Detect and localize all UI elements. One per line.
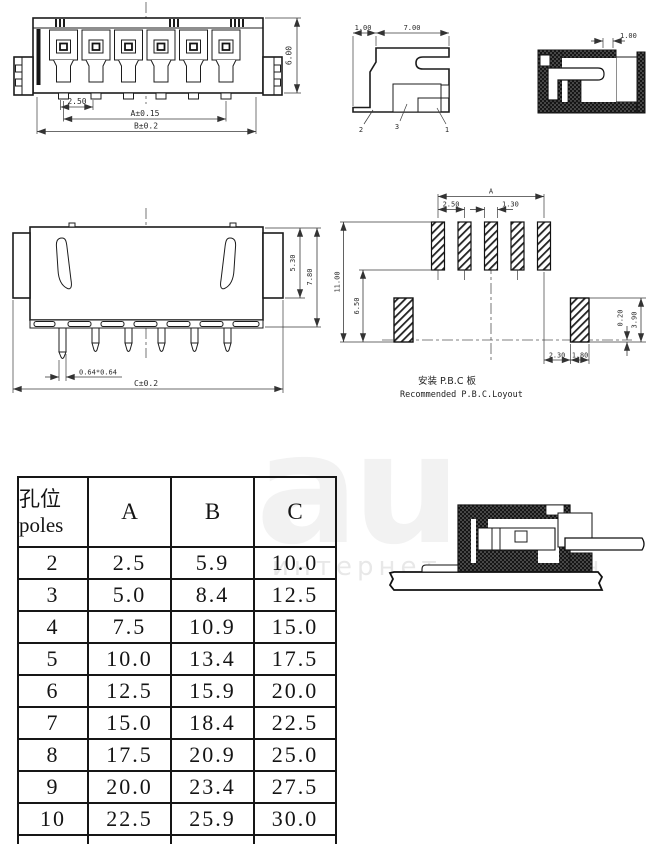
- dim-height: 6.00: [285, 46, 294, 65]
- table-cell: 12.5: [254, 579, 336, 611]
- table-cell: 15.0: [254, 611, 336, 643]
- table-row: 612.515.920.0: [18, 675, 336, 707]
- dim-2-3: 2.30: [549, 352, 565, 360]
- dim-span-a: A: [489, 188, 494, 196]
- table-cell: 18.4: [171, 707, 254, 739]
- table-cell: 9: [18, 771, 88, 803]
- table-cell: 2: [18, 547, 88, 579]
- pcb-dimensions: A 2.50 1.30 11.00 6.50 0.20 3.90: [334, 188, 647, 365]
- pcb-caption-zh: 安装 P.B.C 板: [418, 375, 476, 387]
- table-cell: 25.0: [254, 739, 336, 771]
- table-cell: 10.0: [254, 547, 336, 579]
- table-cell: 27.5: [254, 771, 336, 803]
- pcb-layout-drawing: A 2.50 1.30 11.00 6.50 0.20 3.90: [330, 168, 653, 410]
- table-cell: 8.4: [171, 579, 254, 611]
- mount-foot: [422, 565, 458, 572]
- table-cell: 5.9: [171, 547, 254, 579]
- pin-tail: [565, 538, 644, 550]
- table-cell: 8: [18, 739, 88, 771]
- table-cell: 30.0: [254, 803, 336, 835]
- side-view-drawing: 1.00 7.00 2 3 1 1.00: [330, 0, 653, 168]
- datasheet-page: au интернет аукцион: [0, 0, 653, 844]
- side-profile: [353, 48, 449, 112]
- table-cell: 10.0: [88, 643, 171, 675]
- dim-body-height: 7.80: [306, 269, 314, 286]
- spec-table-body: 22.55.910.035.08.412.547.510.915.0510.01…: [18, 547, 336, 835]
- dim-slot-depth: 5.30: [289, 255, 297, 272]
- table-cell: 25.9: [171, 803, 254, 835]
- section-view: 1.00: [538, 32, 645, 113]
- table-cell: 3: [18, 579, 88, 611]
- dim-pin-size: 0.64*0.64: [79, 369, 117, 377]
- dim-1-8: 1.80: [572, 352, 588, 360]
- front-mount-ear-right: [263, 57, 282, 95]
- table-cell: 12.5: [88, 675, 171, 707]
- table-cell: 20.9: [171, 739, 254, 771]
- table-header-row: 孔位 poles A B C: [18, 477, 336, 547]
- table-cell: 2.5: [88, 547, 171, 579]
- col-header-poles: 孔位 poles: [18, 477, 88, 547]
- table-cell: 7.5: [88, 611, 171, 643]
- table-cell: 22.5: [254, 707, 336, 739]
- table-cell: 6: [18, 675, 88, 707]
- dim-0-2: 0.20: [617, 310, 625, 327]
- col-header-b: B: [171, 477, 254, 547]
- table-cell: 10.9: [171, 611, 254, 643]
- table-cell: 17.5: [254, 643, 336, 675]
- table-cell: 5: [18, 643, 88, 675]
- table-cell: 4: [18, 611, 88, 643]
- table-cell: 5.0: [88, 579, 171, 611]
- dim-b: B±0.2: [134, 122, 158, 131]
- dimensions-table: 孔位 poles A B C 22.55.910.035.08.412.547.…: [17, 476, 337, 844]
- col-header-a: A: [88, 477, 171, 547]
- table-row: 22.55.910.0: [18, 547, 336, 579]
- connector-section: [422, 505, 644, 572]
- mounted-section-drawing: [330, 425, 653, 615]
- dim-3-9: 3.90: [631, 312, 639, 329]
- dim-a: A±0.15: [131, 109, 160, 118]
- table-row: 47.510.915.0: [18, 611, 336, 643]
- front-mount-ear-left: [14, 57, 33, 95]
- col-header-c: C: [254, 477, 336, 547]
- leader-1: 1: [445, 126, 449, 134]
- front-housing: [33, 18, 263, 99]
- poles-label-en: poles: [19, 512, 87, 538]
- table-cell: 20.0: [88, 771, 171, 803]
- rear-housing: [13, 223, 283, 359]
- table-row: 1022.525.930.0: [18, 803, 336, 835]
- dim-c: C±0.2: [134, 379, 158, 388]
- dim-pad-gap: 6.50: [353, 298, 361, 315]
- table-cell: 13.4: [171, 643, 254, 675]
- pcb-caption-en: Recommended P.B.C.Loyout: [400, 390, 523, 400]
- table-row: 817.520.925.0: [18, 739, 336, 771]
- table-cell: 23.4: [171, 771, 254, 803]
- dim-total-height: 11.00: [334, 271, 342, 292]
- table-row: 510.013.417.5: [18, 643, 336, 675]
- dim-wall: 1.00: [620, 32, 637, 40]
- table-cell: 20.0: [254, 675, 336, 707]
- table-cell: 15.0: [88, 707, 171, 739]
- dim-offset: 1.00: [355, 24, 372, 32]
- table-row-clipped: [18, 835, 336, 844]
- table-row: 715.018.422.5: [18, 707, 336, 739]
- leader-2: 2: [359, 126, 363, 134]
- poles-label-zh: 孔位: [19, 486, 87, 512]
- table-row: 920.023.427.5: [18, 771, 336, 803]
- rear-view-drawing: 0.64*0.64 C±0.2 5.30 7.80: [0, 190, 330, 410]
- table-cell: 10: [18, 803, 88, 835]
- leader-3: 3: [395, 123, 399, 131]
- table-cell: 15.9: [171, 675, 254, 707]
- pcb-board: [390, 572, 602, 590]
- table-cell: 22.5: [88, 803, 171, 835]
- front-view-drawing: 2.50 A±0.15 B±0.2 6.00: [0, 0, 330, 168]
- spec-table-wrap: 孔位 poles A B C 22.55.910.035.08.412.547.…: [17, 476, 335, 844]
- pcb-pads: [394, 222, 589, 342]
- table-cell: 17.5: [88, 739, 171, 771]
- table-cell: 7: [18, 707, 88, 739]
- table-row: 35.08.412.5: [18, 579, 336, 611]
- dim-depth: 7.00: [404, 24, 421, 32]
- dim-pitch: 2.50: [67, 97, 86, 106]
- dim-pad-width: 1.30: [502, 201, 519, 209]
- dim-pad-pitch: 2.50: [443, 201, 460, 209]
